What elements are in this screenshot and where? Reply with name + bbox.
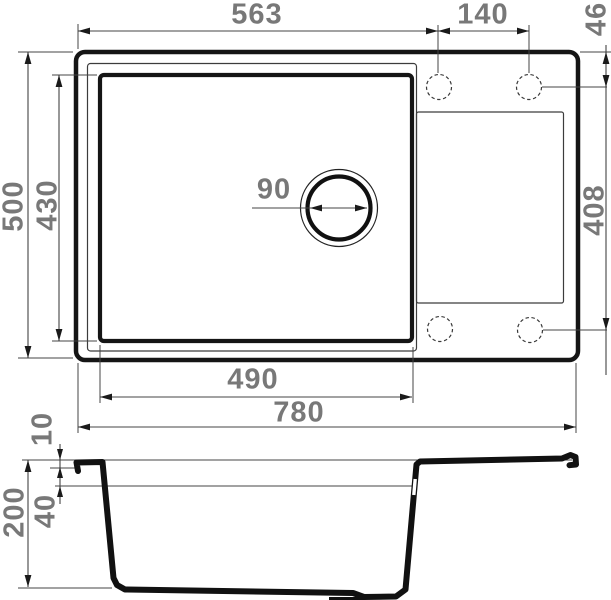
overflow-gap: [414, 479, 415, 495]
dim-hole-row-span-label: 408: [581, 184, 610, 235]
sink-technical-drawing: 563 140 46 500 430 90 408 490 780 10 200…: [0, 0, 611, 600]
dim-ledge-depth-label: 40: [32, 494, 61, 528]
dim-overall-width-label: 780: [273, 399, 324, 428]
faucet-hole-top-right: [517, 75, 542, 100]
drawing-linework: [0, 0, 611, 600]
sink-rim-inner-edge: [88, 64, 417, 352]
dim-hole-spacing-label: 140: [457, 1, 508, 30]
dim-top-width-label: 563: [231, 1, 282, 30]
dim-drain-diameter-label: 90: [257, 176, 291, 205]
dim-hole-top-offset-label: 46: [583, 2, 611, 36]
drainboard-outline: [417, 112, 564, 303]
faucet-hole-top-left: [427, 75, 452, 100]
dim-overall-depth-label: 500: [0, 180, 29, 231]
dim-bowl-depth-label: 430: [34, 179, 63, 230]
faucet-hole-bottom-right: [518, 318, 543, 343]
top-view: [18, 24, 611, 433]
faucet-hole-bottom-left: [428, 317, 453, 342]
dim-total-height-label: 200: [1, 486, 30, 537]
dim-rim-height-label: 10: [29, 412, 58, 446]
section-reference-lines: [18, 460, 572, 588]
sink-outer-edge: [76, 52, 578, 360]
section-view: [18, 444, 576, 599]
dim-bowl-width-label: 490: [227, 366, 278, 395]
section-profile: [77, 455, 577, 597]
